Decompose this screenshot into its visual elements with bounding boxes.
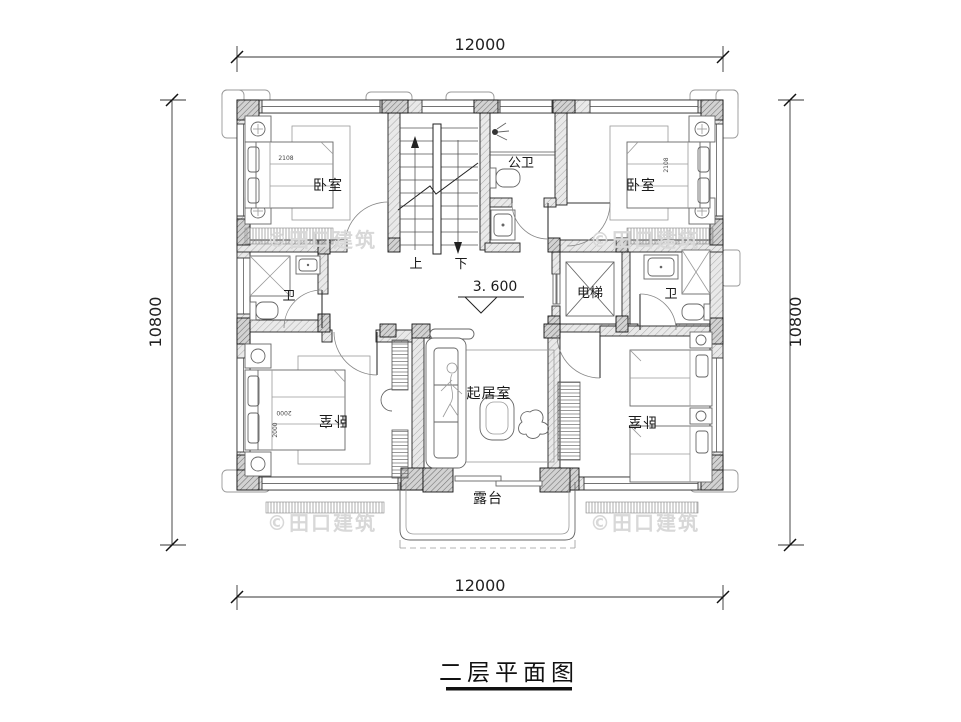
sink-icon — [296, 256, 320, 274]
watermark-text: ©田口建筑 — [590, 511, 700, 535]
dimension-left: 10800 — [146, 94, 186, 551]
watermark-text: ©田口建筑 — [590, 228, 700, 252]
elevation-marker: 3. 600 — [458, 279, 524, 313]
stair-down-arrow — [454, 242, 462, 254]
shower-head-icon — [492, 123, 509, 140]
public-bathroom-fixtures — [490, 123, 555, 240]
watermark-text: ©田口建筑 — [267, 228, 377, 252]
title-block: 二层平面图 — [439, 660, 579, 691]
room-label-bedroom-top-right: 卧室 — [626, 177, 656, 194]
nightstand — [245, 116, 271, 142]
room-label-living-room: 起居室 — [467, 385, 512, 402]
toilet-icon — [682, 304, 710, 320]
dimension-bottom: 12000 — [231, 576, 729, 610]
door-bedroom-bottom-right — [557, 335, 600, 378]
sink-icon — [644, 255, 678, 279]
bed-dim: 2108 — [278, 155, 293, 162]
stair-up-label: 上 — [409, 257, 422, 272]
double-bed — [245, 142, 333, 208]
shower-icon — [682, 250, 710, 294]
room-label-elevator: 电梯 — [577, 286, 603, 301]
room-label-bedroom-bottom-right: 卧室 — [627, 413, 657, 430]
door-bedroom-bottom-left — [334, 332, 377, 375]
room-label-bedroom-bottom-left: 卧室 — [318, 412, 348, 429]
nightstand — [690, 332, 712, 348]
elevation-triangle-icon — [465, 297, 497, 313]
terrace-sliding-door — [455, 476, 542, 486]
title-underline — [446, 687, 572, 691]
chair — [381, 389, 392, 411]
room-label-terrace: 露台 — [473, 491, 503, 507]
wardrobe — [558, 382, 580, 460]
nightstand — [245, 344, 271, 368]
floor-plan: 12000 12000 10800 10800 — [0, 0, 961, 722]
wardrobe — [392, 340, 408, 390]
dim-left-value: 10800 — [146, 297, 165, 348]
stair-stringer — [433, 124, 441, 254]
single-bed — [630, 350, 712, 406]
coffee-table — [480, 396, 514, 440]
pet-figure — [519, 410, 549, 439]
sofa — [426, 338, 466, 468]
room-label-bathroom-left: 卫 — [282, 289, 295, 304]
elevation-value: 3. 600 — [473, 279, 518, 295]
left-bathroom-fixtures — [250, 256, 320, 320]
single-bed — [630, 426, 712, 482]
right-bathroom-fixtures — [644, 250, 710, 320]
stair-down-label: 下 — [454, 257, 467, 272]
toilet-icon — [250, 302, 278, 320]
drawing-sheet: 12000 12000 10800 10800 — [0, 0, 961, 722]
bed-dim: 2000 — [272, 422, 279, 437]
door-public-bathroom — [512, 203, 548, 239]
bedroom-bottom-left-furniture: 2000 2000 — [245, 340, 408, 478]
wardrobe — [392, 430, 408, 478]
room-label-bedroom-top-left: 卧室 — [313, 177, 343, 194]
dim-bottom-value: 12000 — [455, 576, 506, 595]
watermark-text: ©田口建筑 — [267, 511, 377, 535]
page-title: 二层平面图 — [439, 660, 579, 686]
double-bed — [627, 142, 710, 208]
dim-top-value: 12000 — [455, 35, 506, 54]
dimension-right: 10800 — [778, 94, 805, 551]
bed-dim: 2000 — [276, 409, 291, 416]
console-table — [430, 329, 474, 339]
sink-icon — [491, 210, 515, 240]
dimension-top: 12000 — [231, 35, 729, 72]
stair-up-arrow — [411, 136, 419, 148]
stairs: 上 下 — [398, 124, 478, 272]
nightstand — [690, 408, 712, 424]
bed-dim: 2108 — [663, 157, 670, 172]
toilet-icon — [490, 168, 520, 188]
nightstand — [689, 116, 715, 142]
bedroom-bottom-right-furniture — [558, 332, 712, 482]
nightstand — [245, 452, 271, 476]
elevator-door — [553, 274, 556, 304]
room-label-bathroom-right: 卫 — [664, 287, 677, 302]
dim-right-value: 10800 — [786, 297, 805, 348]
double-bed — [245, 370, 345, 450]
room-label-public-bathroom: 公卫 — [508, 156, 534, 171]
